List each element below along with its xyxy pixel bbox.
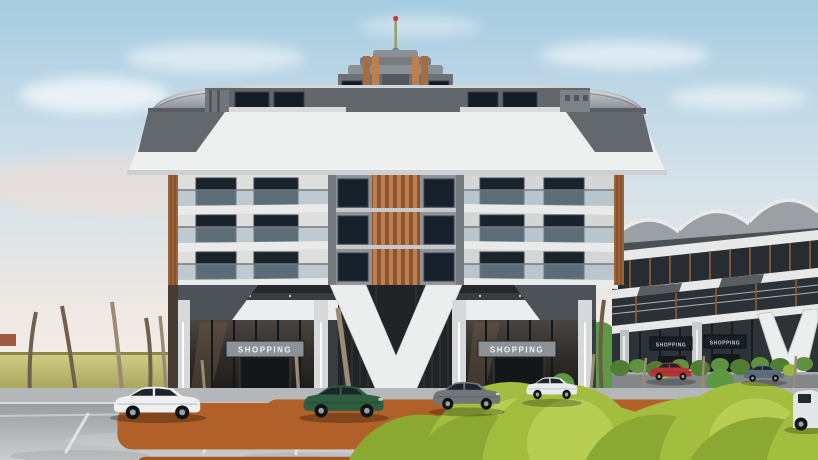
distant-roof [0,334,16,346]
corner-wood-pilaster-left [168,175,178,285]
attic-floor [205,88,590,113]
architectural-render: SHOPPING SHOPPING [0,0,818,460]
ground-floor: SHOPPING SHOPPING [168,285,596,398]
tower-wood-column [372,175,420,285]
side-shop-sign-left-text: SHOPPING [656,343,686,349]
side-shop-sign-right-text: SHOPPING [710,341,740,347]
spire-tip [393,16,398,21]
corner-wood-pilaster-right [614,175,624,285]
main-shop-sign-left-text: SHOPPING [238,346,292,355]
secondary-building: SHOPPING SHOPPING [610,200,818,396]
cornice-band [127,112,667,175]
main-shop-sign-right-text: SHOPPING [490,346,544,355]
render-stage: SHOPPING SHOPPING [0,0,818,460]
residential-floors [168,175,624,289]
